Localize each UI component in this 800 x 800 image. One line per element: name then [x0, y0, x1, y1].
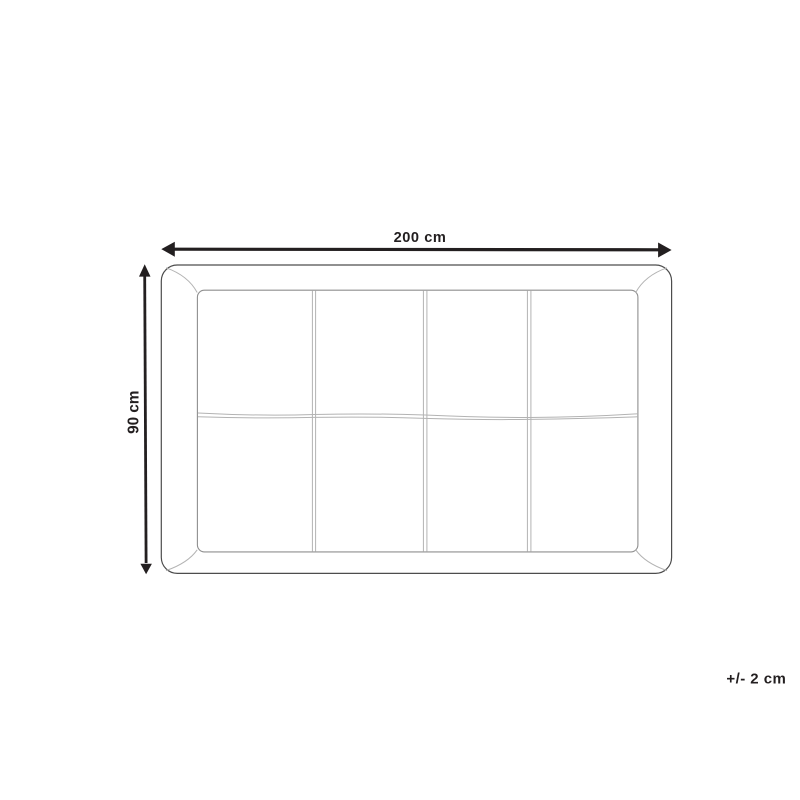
- svg-text:+/- 2 cm: +/- 2 cm: [726, 671, 786, 688]
- svg-text:90 cm: 90 cm: [126, 391, 143, 434]
- svg-text:200 cm: 200 cm: [394, 230, 447, 246]
